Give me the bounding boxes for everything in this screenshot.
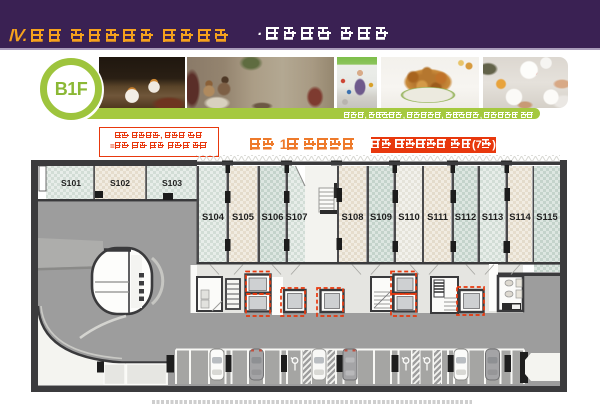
svg-text:S110: S110 (398, 211, 419, 222)
svg-text:S102: S102 (110, 178, 130, 188)
svg-text:S103: S103 (162, 178, 182, 188)
svg-text:S106: S106 (262, 211, 284, 222)
svg-text:S105: S105 (232, 211, 254, 222)
svg-text:S107: S107 (286, 211, 308, 222)
svg-text:S113: S113 (482, 211, 503, 222)
svg-text:S104: S104 (202, 211, 225, 222)
svg-text:S109: S109 (370, 211, 392, 222)
svg-text:S114: S114 (509, 211, 531, 222)
svg-text:S115: S115 (536, 211, 557, 222)
svg-text:S112: S112 (455, 211, 476, 222)
svg-text:S101: S101 (61, 178, 81, 188)
svg-text:S108: S108 (342, 211, 364, 222)
svg-text:S111: S111 (427, 211, 448, 222)
